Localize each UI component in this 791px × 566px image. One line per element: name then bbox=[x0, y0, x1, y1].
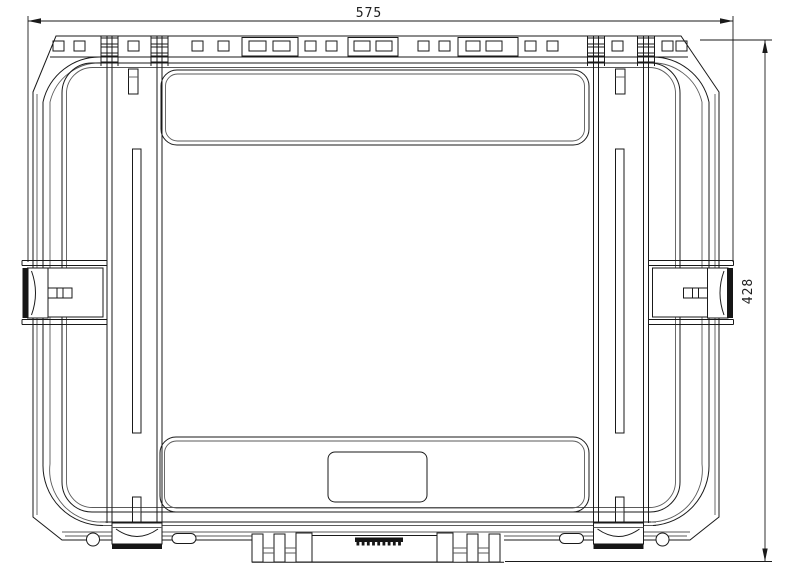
strip-hole bbox=[376, 41, 392, 51]
strap-rail bbox=[107, 36, 112, 523]
foot-slot-left bbox=[172, 534, 196, 544]
foot-slot-right bbox=[560, 534, 584, 544]
strap-rail bbox=[644, 36, 649, 523]
strap-rung bbox=[638, 38, 655, 44]
latch-handle bbox=[708, 268, 729, 318]
corner-arc-bl-inner bbox=[50, 464, 105, 522]
latch-edge-bar bbox=[727, 268, 733, 318]
strip-hole bbox=[547, 41, 558, 51]
strip-hole bbox=[192, 41, 203, 51]
handle-knuckle bbox=[274, 534, 285, 562]
width-dimension: 575 bbox=[28, 6, 733, 262]
strip-hole bbox=[525, 41, 536, 51]
strap-rung bbox=[151, 38, 168, 44]
arrowhead-up bbox=[762, 40, 767, 53]
strip-hole bbox=[128, 41, 139, 51]
strip-hole bbox=[439, 41, 450, 51]
strip-hole bbox=[249, 41, 266, 51]
top-recess-outer bbox=[161, 70, 589, 145]
bottom-recess-inner bbox=[165, 441, 585, 508]
hinge-pin-left bbox=[129, 69, 139, 94]
grip-serration-bar bbox=[355, 538, 403, 543]
hinge-straps bbox=[101, 36, 655, 523]
strip-lug-box bbox=[458, 38, 518, 57]
foot-pin-left bbox=[87, 533, 100, 546]
bottom-recess-outer bbox=[160, 437, 589, 512]
strap-rung bbox=[588, 47, 605, 53]
grip-serration-teeth bbox=[357, 542, 401, 546]
latch-edge-bar bbox=[23, 268, 29, 318]
handle-knuckle bbox=[437, 533, 453, 562]
strip-hole bbox=[418, 41, 429, 51]
strap-rung bbox=[151, 47, 168, 53]
side-latch-left bbox=[22, 261, 107, 325]
foot-pin-right bbox=[656, 533, 669, 546]
strip-hole bbox=[218, 41, 229, 51]
arrowhead-down bbox=[762, 549, 767, 562]
handle-knuckle bbox=[489, 534, 500, 562]
strap-rung bbox=[588, 38, 605, 44]
latch-clasp bbox=[684, 288, 708, 298]
strap-rail bbox=[594, 36, 599, 523]
strip-hole bbox=[305, 41, 316, 51]
strip-hole bbox=[486, 41, 502, 51]
carry-handle bbox=[252, 533, 504, 563]
technical-drawing-canvas: 575 428 bbox=[0, 0, 791, 566]
height-dimension-value: 428 bbox=[741, 278, 756, 304]
side-latch-right bbox=[649, 261, 734, 325]
bottom-latch-right bbox=[594, 523, 644, 549]
handle-knuckle bbox=[252, 534, 263, 562]
top-recess-inner bbox=[166, 74, 585, 141]
shell-outline bbox=[33, 36, 719, 540]
strap-rung bbox=[101, 47, 118, 53]
latch-body bbox=[594, 523, 644, 544]
corner-arc-bl-outer bbox=[43, 464, 103, 526]
strip-lug-box bbox=[348, 38, 398, 57]
strip-hole bbox=[612, 41, 623, 51]
strip-hole bbox=[466, 41, 480, 51]
latch-edge-bar bbox=[112, 544, 162, 550]
label-plate bbox=[328, 452, 427, 502]
bottom-latch-left bbox=[112, 523, 162, 549]
lid-rib-right bbox=[616, 149, 625, 433]
strap-rung bbox=[101, 38, 118, 44]
case-top-view-drawing: 575 428 bbox=[0, 0, 791, 566]
strip-hole bbox=[354, 41, 370, 51]
corner-arc-br-inner bbox=[651, 464, 702, 522]
hinge-pin-right bbox=[616, 69, 626, 94]
handle-knuckle bbox=[467, 534, 478, 562]
strip-hole bbox=[273, 41, 290, 51]
latch-handle bbox=[28, 268, 49, 318]
strap-rung bbox=[638, 47, 655, 53]
handle-knuckle bbox=[296, 533, 312, 562]
lid-seam-outer bbox=[62, 63, 680, 512]
corner-arc-br-outer bbox=[653, 464, 709, 526]
corner-arc-tl-inner bbox=[50, 63, 103, 102]
lid-panel bbox=[62, 63, 680, 512]
latch-clasp bbox=[48, 288, 72, 298]
latch-body bbox=[112, 523, 162, 544]
latch-edge-bar bbox=[594, 544, 644, 550]
width-dimension-value: 575 bbox=[356, 6, 382, 21]
strip-hole bbox=[326, 41, 337, 51]
lid-rib-left bbox=[133, 149, 142, 433]
strip-hole bbox=[74, 41, 85, 51]
arrowhead-right bbox=[720, 18, 733, 23]
strip-hole bbox=[662, 41, 673, 51]
strip-hole bbox=[53, 41, 64, 51]
arrowhead-left bbox=[28, 18, 41, 23]
latch-pin-left bbox=[133, 497, 142, 523]
case-outer-shell bbox=[33, 36, 719, 540]
latch-pin-right bbox=[616, 497, 625, 523]
